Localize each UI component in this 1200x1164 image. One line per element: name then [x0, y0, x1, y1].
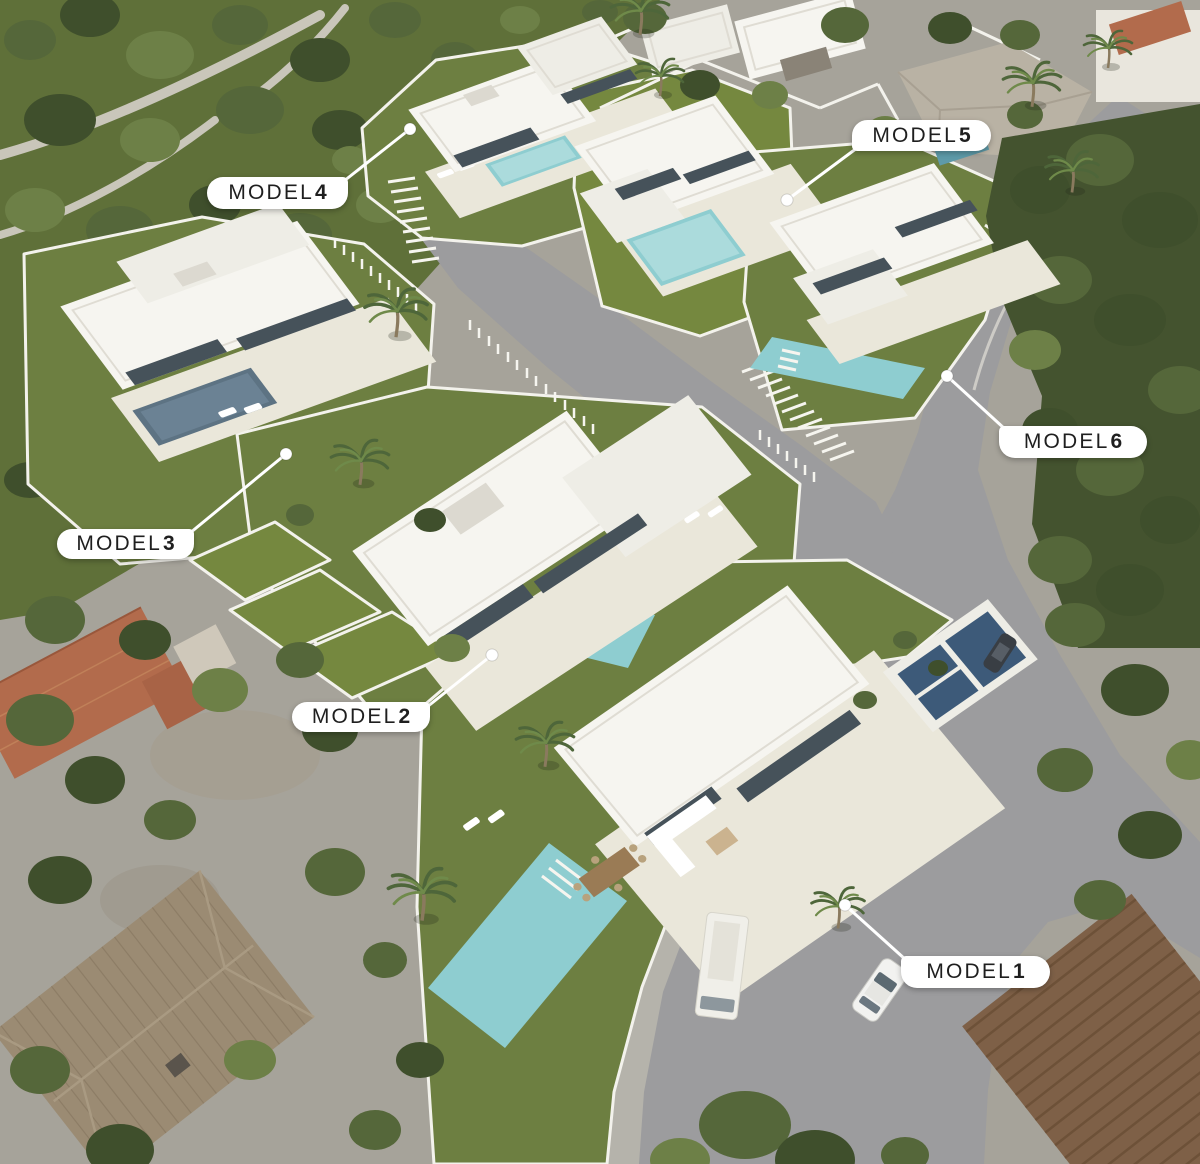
callout-model3[interactable]: MODEL3	[57, 529, 194, 559]
callout-model5-word: MODEL	[872, 124, 958, 148]
callout-model6[interactable]: MODEL6	[999, 426, 1147, 458]
callout-model2-word: MODEL	[312, 705, 398, 729]
callout-model1-digit: 1	[1013, 960, 1025, 984]
callout-model2[interactable]: MODEL2	[292, 702, 430, 732]
callout-model6-digit: 6	[1111, 430, 1123, 454]
callout-model4-word: MODEL	[228, 181, 314, 205]
scene-illustration	[0, 0, 1200, 1164]
callout-model1[interactable]: MODEL1	[901, 956, 1050, 988]
callout-model6-word: MODEL	[1024, 430, 1110, 454]
callout-model2-digit: 2	[399, 705, 411, 729]
callout-model4[interactable]: MODEL4	[207, 177, 348, 209]
callout-model1-word: MODEL	[926, 960, 1012, 984]
callout-model5-digit: 5	[959, 124, 971, 148]
callout-model4-digit: 4	[315, 181, 327, 205]
callout-model5[interactable]: MODEL5	[852, 120, 991, 151]
callout-model3-word: MODEL	[76, 532, 162, 556]
callout-model3-digit: 3	[163, 532, 175, 556]
aerial-render: MODEL1 MODEL2 MODEL3 MODEL4 MODEL5 MODEL…	[0, 0, 1200, 1164]
